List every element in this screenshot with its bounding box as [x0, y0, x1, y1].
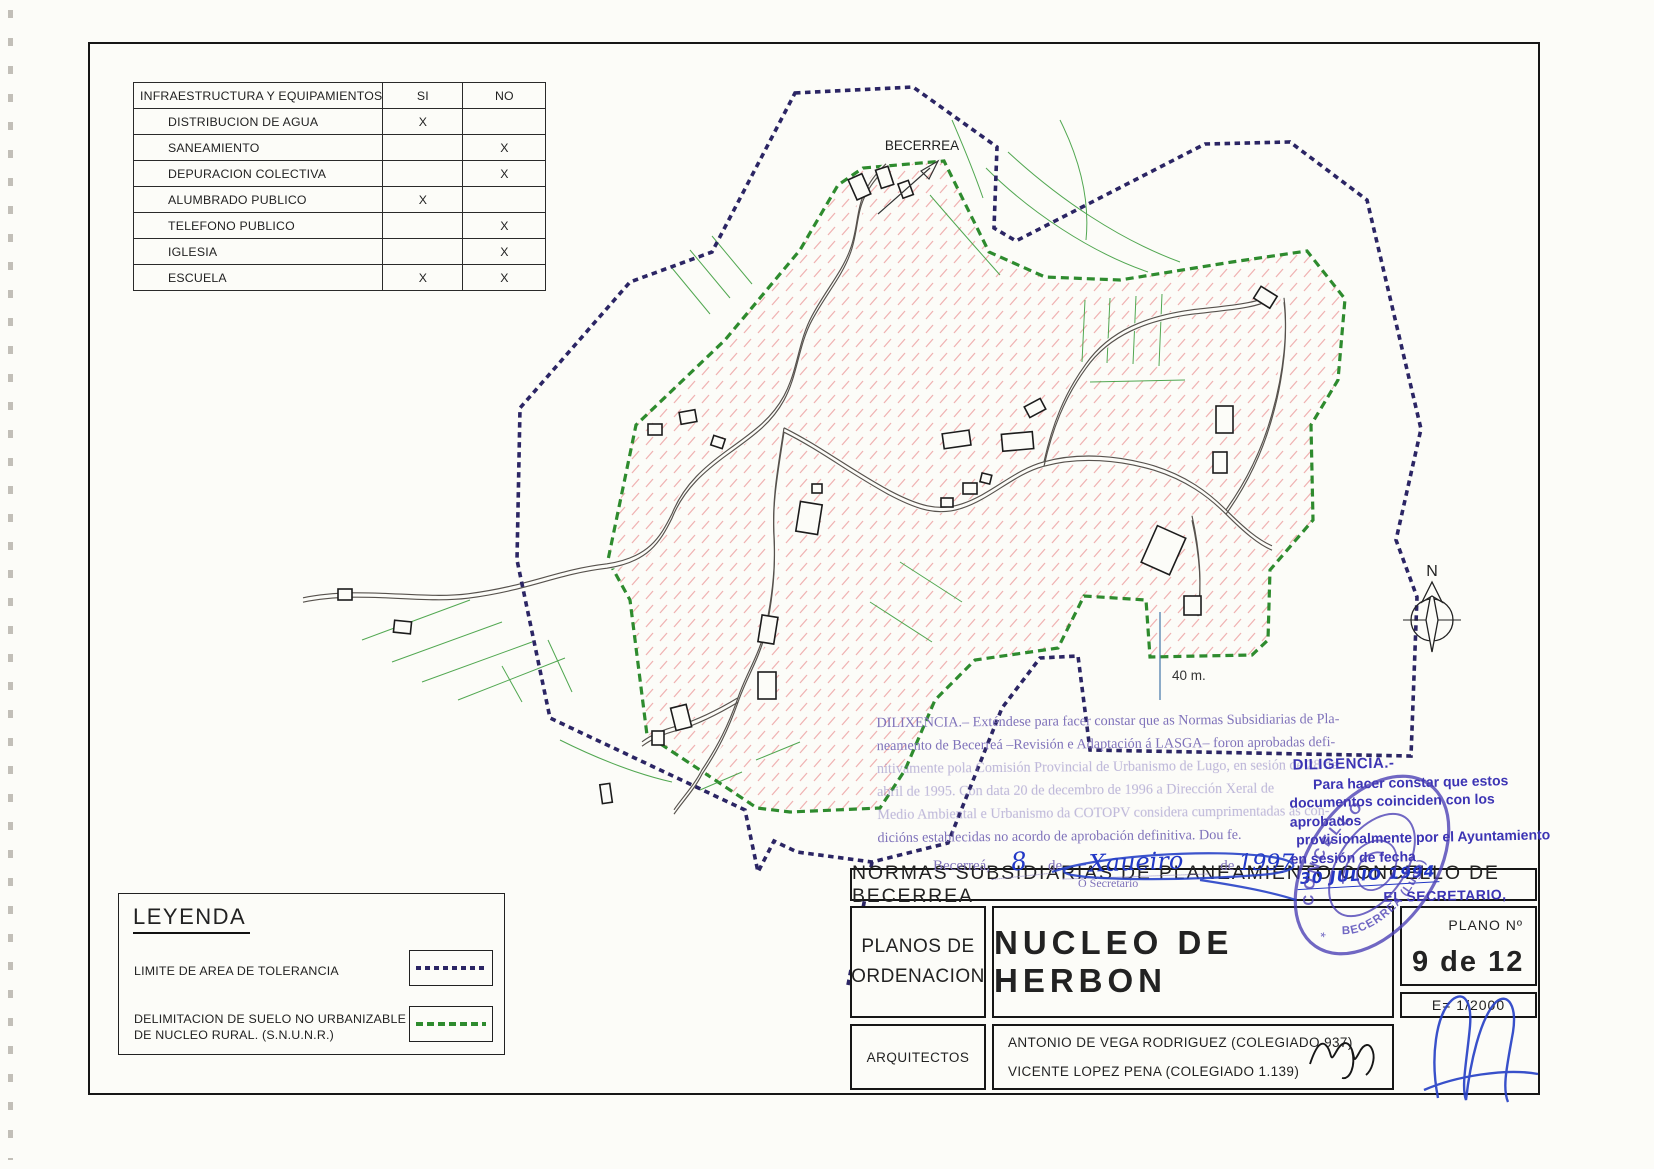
- diligencia-line: documentos coinciden con los aprobados: [1289, 788, 1552, 830]
- legend-title: LEYENDA: [133, 904, 250, 934]
- date-de: de: [1048, 858, 1062, 875]
- diligencia-line: en sesión de fecha30 JULIO 1994: [1290, 844, 1553, 887]
- plano-number-label: PLANO Nº: [1448, 917, 1523, 933]
- table-row: SANEAMIENTO X: [134, 135, 546, 161]
- table-row: DEPURACION COLECTIVA X: [134, 161, 546, 187]
- plano-number-value: 9 de 12: [1412, 946, 1524, 979]
- legend-item-snunr-label-line1: DELIMITACION DE SUELO NO URBANIZABLE: [134, 1012, 406, 1026]
- architect-name-2: VICENTE LOPEZ PENA (COLEGIADO 1.139): [1008, 1057, 1392, 1086]
- diligencia-stamp: DILIGENCIA.- Para hacer constar que esto…: [1288, 751, 1553, 907]
- stamp-line: Medio Ambiental e Urbanismo da COTOPV co…: [877, 800, 1351, 827]
- titleblock-architect-names: ANTONIO DE VEGA RODRIGUEZ (COLEGIADO 937…: [992, 1024, 1394, 1090]
- secretary-caption: O Secretario: [1078, 876, 1138, 891]
- handwritten-approval-date: 30 JULIO 1994: [1297, 862, 1440, 889]
- legend-item-tolerance-label: LIMITE DE AREA DE TOLERANCIA: [134, 964, 339, 978]
- legend-swatch-snunr: [409, 1006, 493, 1042]
- table-header-row: INFRAESTRUCTURA Y EQUIPAMIENTOS SI NO: [134, 83, 546, 109]
- titleblock-architects-label: ARQUITECTOS: [850, 1024, 986, 1090]
- binder-perforation-marks: [8, 10, 13, 1160]
- date-prefix: Becerreá,: [933, 858, 990, 875]
- handwritten-day: 8: [989, 844, 1050, 880]
- table-row: IGLESIA X: [134, 239, 546, 265]
- titleblock-plano-cell: PLANO Nº 9 de 12: [1400, 906, 1537, 986]
- table-row: ESCUELA X X: [134, 265, 546, 291]
- legend-swatch-tolerance: [409, 950, 493, 986]
- titleblock-scale: E= 1/2000: [1400, 992, 1537, 1018]
- titleblock-sheet-name: NUCLEO DE HERBON: [992, 906, 1394, 1018]
- table-header-no: NO: [463, 83, 546, 109]
- stamp-line: dicións establecidas no acordo de aproba…: [877, 823, 1351, 850]
- titleblock-series: PLANOS DE ORDENACION: [850, 906, 986, 1018]
- table-header-title: INFRAESTRUCTURA Y EQUIPAMIENTOS: [134, 83, 383, 109]
- legend-box: LEYENDA LIMITE DE AREA DE TOLERANCIA DEL…: [118, 893, 505, 1055]
- series-line2: ORDENACION: [851, 962, 985, 992]
- legend-item-snunr-label-line2: DE NUCLEO RURAL. (S.N.U.N.R.): [134, 1028, 334, 1042]
- architect-name-1: ANTONIO DE VEGA RODRIGUEZ (COLEGIADO 937…: [1008, 1028, 1392, 1057]
- series-line1: PLANOS DE: [861, 932, 974, 962]
- dilixencia-stamp-text: DILIXENCIA.– Exténdese para facer consta…: [876, 708, 1351, 850]
- handwritten-month: Xaueiro: [1062, 845, 1211, 879]
- diligencia-signoff: EL SECRETARIO,: [1383, 884, 1553, 906]
- handwritten-date-line: Becerreá, 8 de Xaueiro de 1997: [933, 847, 1294, 877]
- date-de: de: [1220, 858, 1234, 875]
- table-row: TELEFONO PUBLICO X: [134, 213, 546, 239]
- table-row: ALUMBRADO PUBLICO X: [134, 187, 546, 213]
- scanned-plan-sheet: BECERREA 40 m. N INFRAESTRUCTURA Y EQUIP…: [0, 0, 1654, 1169]
- table-header-si: SI: [383, 83, 463, 109]
- handwritten-year: 1997: [1238, 851, 1294, 876]
- table-row: DISTRIBUCION DE AGUA X: [134, 109, 546, 135]
- infrastructure-table: INFRAESTRUCTURA Y EQUIPAMIENTOS SI NO DI…: [133, 82, 546, 291]
